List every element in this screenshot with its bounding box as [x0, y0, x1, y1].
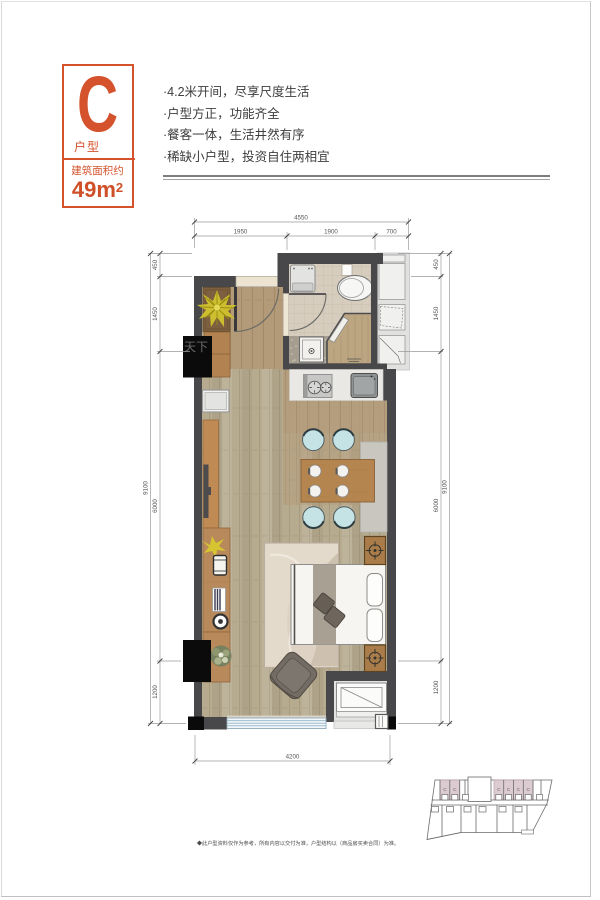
svg-text:450: 450	[433, 259, 440, 270]
svg-text:450: 450	[152, 259, 159, 270]
svg-text:C: C	[517, 787, 521, 793]
svg-text:6000: 6000	[433, 498, 440, 512]
svg-text:1450: 1450	[152, 307, 159, 321]
svg-text:1200: 1200	[152, 685, 159, 699]
svg-text:天下: 天下	[184, 340, 208, 354]
svg-text:9100: 9100	[442, 480, 449, 494]
svg-text:4200: 4200	[286, 754, 300, 761]
svg-text:C: C	[497, 787, 501, 793]
svg-text:C: C	[453, 787, 457, 793]
svg-text:1200: 1200	[433, 680, 440, 694]
svg-text:1900: 1900	[324, 229, 338, 236]
svg-text:C: C	[507, 787, 511, 793]
svg-text:1450: 1450	[433, 306, 440, 320]
svg-text:4550: 4550	[294, 215, 308, 222]
svg-text:C: C	[443, 787, 447, 793]
svg-text:6000: 6000	[152, 499, 159, 513]
svg-text:1950: 1950	[234, 229, 248, 236]
svg-text:700: 700	[386, 229, 397, 236]
svg-text:C: C	[526, 787, 530, 793]
svg-text:9100: 9100	[143, 481, 150, 495]
